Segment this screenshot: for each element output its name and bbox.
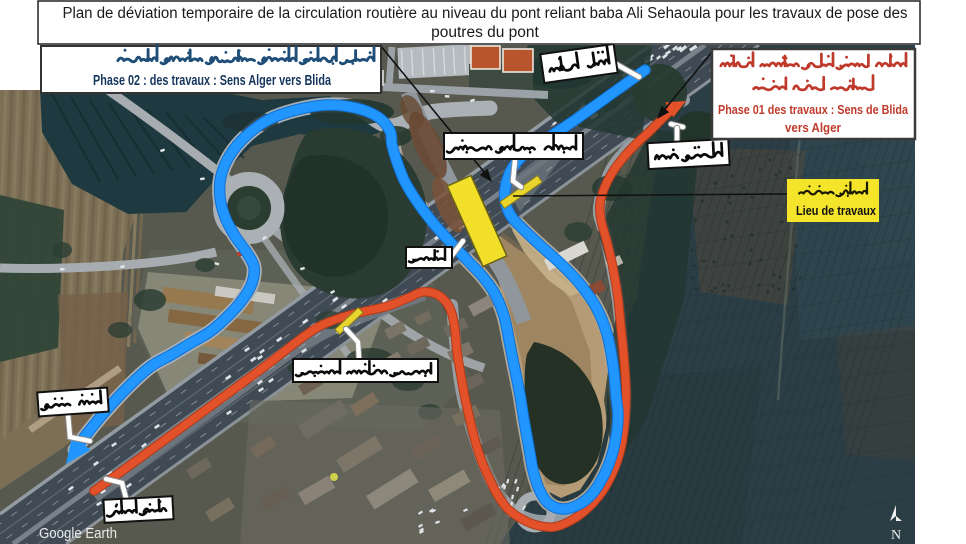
svg-text:vers Alger: vers Alger	[785, 120, 841, 135]
svg-text:Lieu de travaux: Lieu de travaux	[796, 204, 876, 218]
svg-text:poutres du pont: poutres du pont	[431, 24, 539, 41]
svg-text:N: N	[891, 528, 901, 543]
svg-text:Plan de déviation temporaire d: Plan de déviation temporaire de la circu…	[63, 5, 908, 22]
svg-text:Phase 02 : des travaux : Sens: Phase 02 : des travaux : Sens Alger vers…	[93, 73, 332, 89]
svg-text:Phase 01 des travaux : Sens de: Phase 01 des travaux : Sens de Blida	[718, 102, 909, 117]
svg-text:Google Earth: Google Earth	[39, 526, 117, 542]
